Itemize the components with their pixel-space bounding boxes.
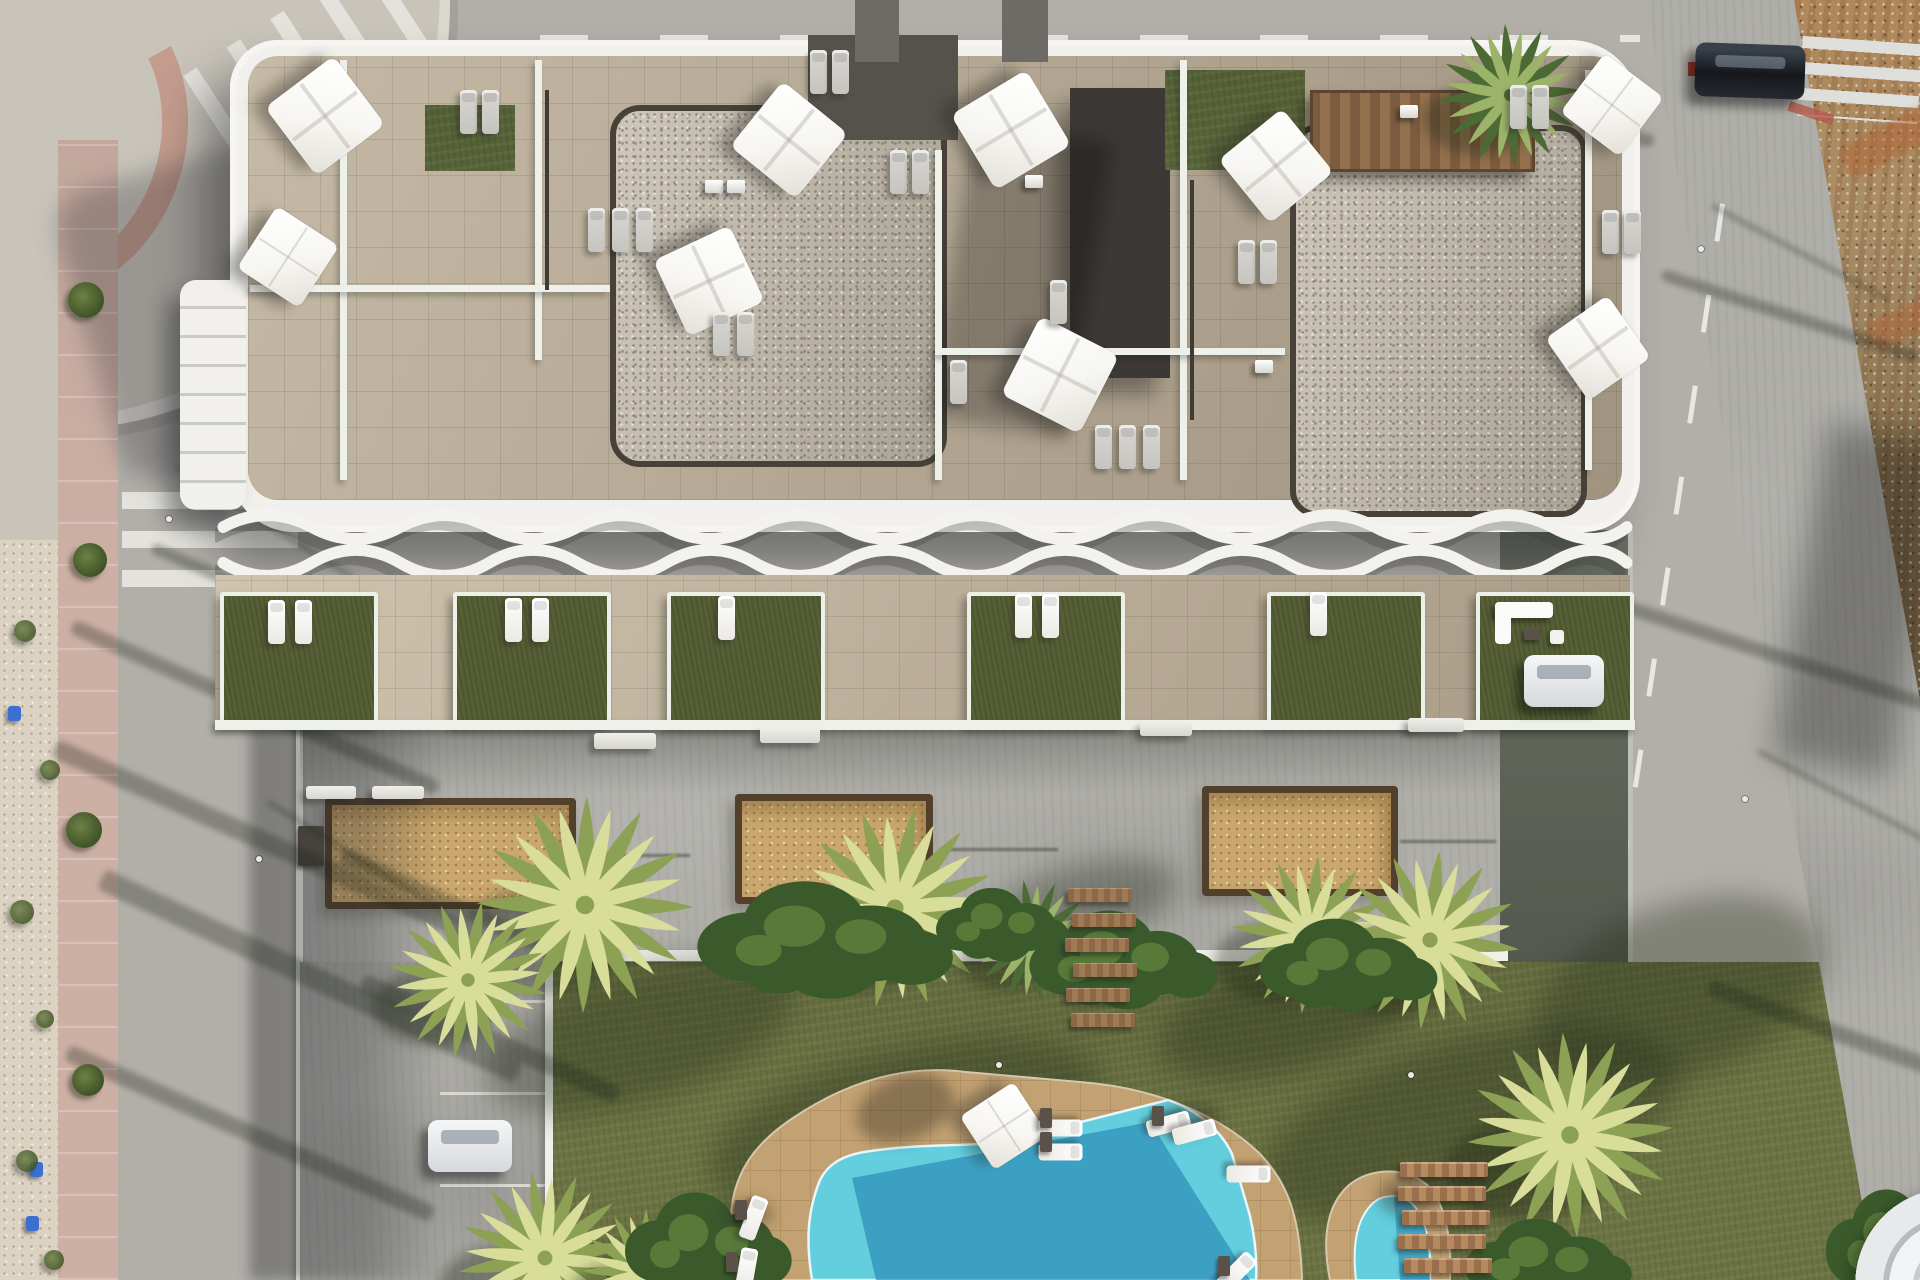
sun-lounger [636, 208, 653, 252]
wooden-lounger [1398, 1234, 1486, 1249]
sun-lounger [737, 312, 754, 356]
ac-unit [1255, 360, 1273, 373]
parasol [951, 70, 1072, 191]
ac-unit [1400, 105, 1418, 118]
sun-lounger [1015, 594, 1032, 638]
sun-lounger [612, 208, 629, 252]
sun-lounger [1238, 240, 1255, 284]
path-plank [1066, 988, 1130, 1002]
sidewalk-tree [66, 812, 102, 848]
aerial-render: Aerial top-down 3D architectural render … [0, 0, 1920, 1280]
wooden-lounger [1398, 1186, 1486, 1201]
parasol [237, 206, 339, 308]
weed-patch [44, 1250, 64, 1270]
street-lamp [996, 1062, 1002, 1068]
sun-lounger [1042, 594, 1059, 638]
sun-lounger [1602, 210, 1619, 254]
ac-unit [727, 180, 745, 193]
side-table [1040, 1108, 1052, 1128]
bench [1408, 718, 1464, 732]
car-dark [1694, 42, 1806, 100]
weed-patch [10, 900, 34, 924]
dome-structure [1836, 1176, 1920, 1280]
bench [372, 786, 424, 799]
parasol [1545, 295, 1651, 401]
sun-lounger [1095, 425, 1112, 469]
sun-lounger [718, 596, 735, 640]
bench [306, 786, 356, 799]
weed-patch [40, 760, 60, 780]
sun-lounger [588, 208, 605, 252]
wooden-lounger [1404, 1258, 1492, 1273]
sun-lounger [810, 50, 827, 94]
street-lamp [256, 856, 262, 862]
parasol [1218, 108, 1333, 223]
sun-lounger [912, 150, 929, 194]
street-lamp [1408, 1072, 1414, 1078]
street-lamp [1698, 246, 1704, 252]
sun-lounger [1119, 425, 1136, 469]
sun-lounger [505, 598, 522, 642]
side-table [1218, 1256, 1230, 1276]
sun-lounger [1050, 280, 1067, 324]
sun-lounger [950, 360, 967, 404]
weed-patch [36, 1010, 54, 1028]
sun-lounger [713, 312, 730, 356]
deck-shadow [847, 1061, 963, 1155]
sidewalk-tree [73, 543, 107, 577]
path-plank [1065, 938, 1129, 952]
parasol [1560, 53, 1664, 157]
path-plank [1068, 888, 1132, 902]
bench [1140, 722, 1192, 736]
trash-bin [8, 706, 21, 721]
outdoor-chair [1550, 630, 1564, 644]
trash-bin [26, 1216, 39, 1231]
ac-unit [1025, 175, 1043, 188]
sun-lounger [460, 90, 477, 134]
parasol [960, 1082, 1049, 1171]
sun-lounger [1532, 85, 1549, 129]
sun-lounger [532, 598, 549, 642]
side-table [1152, 1106, 1164, 1126]
coffee-table [1524, 628, 1540, 640]
bench [594, 733, 656, 749]
ac-unit [705, 180, 723, 193]
sun-lounger [268, 600, 285, 644]
sun-lounger [1143, 425, 1160, 469]
wooden-lounger [1402, 1210, 1490, 1225]
sun-lounger [482, 90, 499, 134]
sidewalk-tree [68, 282, 104, 318]
path-plank [1071, 1013, 1135, 1027]
wooden-lounger [1400, 1162, 1488, 1177]
weed-patch [14, 620, 36, 642]
sidewalk-tree [72, 1064, 104, 1096]
sun-lounger [832, 50, 849, 94]
street-lamp [1742, 796, 1748, 802]
car-white-parked [428, 1120, 512, 1172]
path-plank [1073, 963, 1137, 977]
outdoor-sofa [1495, 602, 1511, 644]
side-table [1040, 1132, 1052, 1152]
side-table [726, 1252, 738, 1272]
furniture-layer [0, 0, 1920, 1280]
street-lamp [166, 516, 172, 522]
parasol [730, 81, 848, 199]
sun-lounger [295, 600, 312, 644]
side-table [735, 1200, 747, 1220]
sun-lounger [1260, 240, 1277, 284]
weed-patch [16, 1150, 38, 1172]
pool-lounger [1227, 1166, 1271, 1183]
sun-lounger [1310, 592, 1327, 636]
sun-lounger [1624, 210, 1641, 254]
parasol [265, 56, 385, 176]
sun-lounger [1510, 85, 1527, 129]
bench [760, 727, 820, 743]
sun-lounger [890, 150, 907, 194]
car-white-street [1524, 655, 1604, 707]
path-plank [1072, 913, 1136, 927]
parasol [1001, 316, 1119, 434]
